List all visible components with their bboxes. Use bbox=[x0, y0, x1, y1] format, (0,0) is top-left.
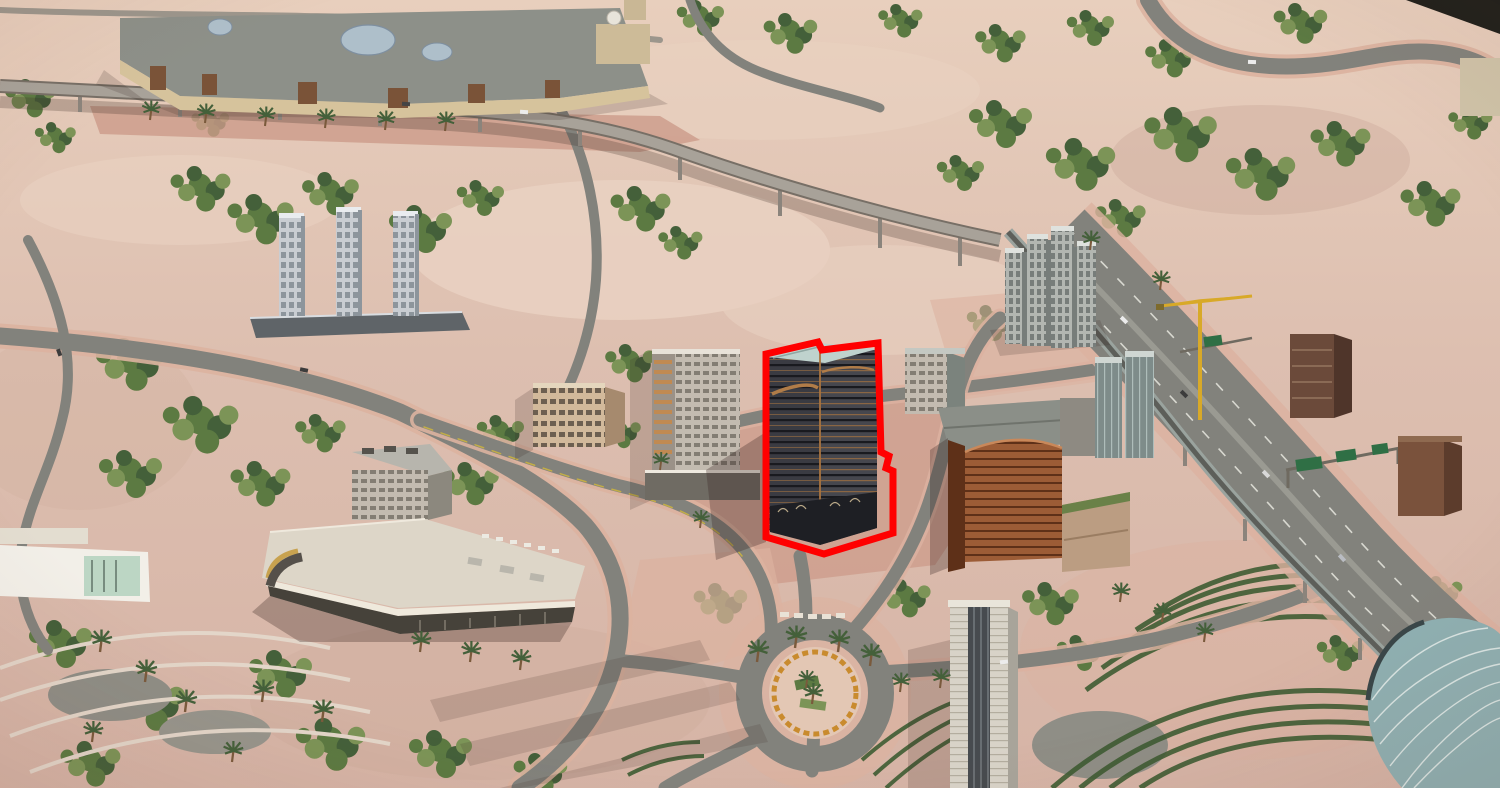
scene-canvas: Photorealistic aerial render of a desert… bbox=[0, 0, 1500, 788]
aerial-render: Photorealistic aerial render of a desert… bbox=[0, 0, 1500, 788]
vignette bbox=[0, 0, 1500, 788]
